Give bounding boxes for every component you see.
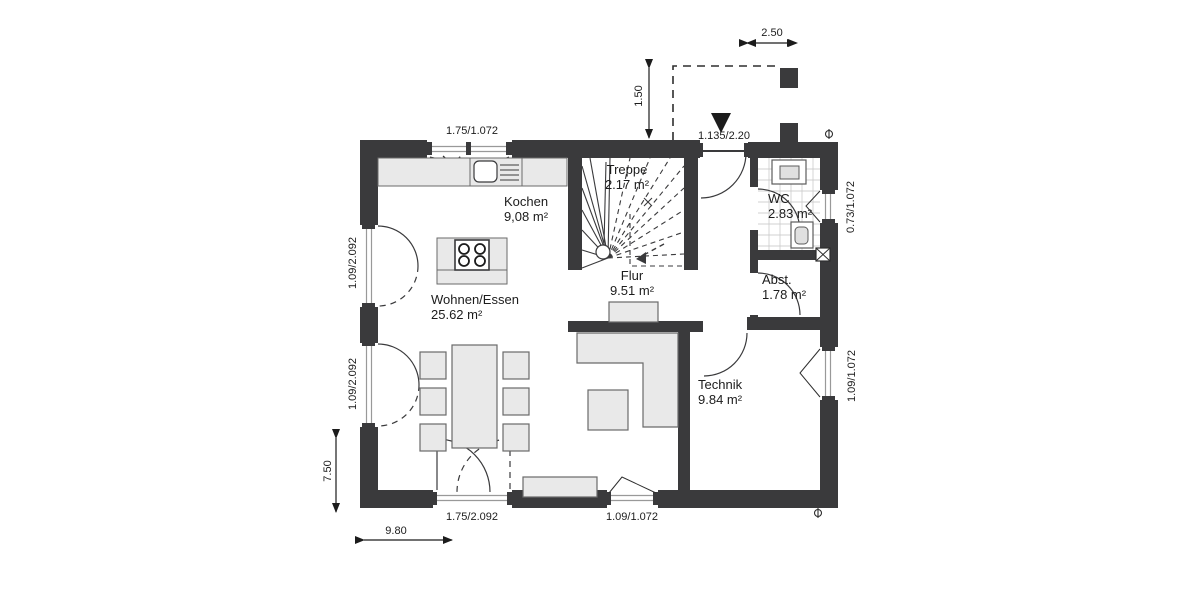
dim-house-depth: 7.50 [322, 446, 334, 496]
wall-right-a [820, 142, 838, 190]
room-label-wohnen: Wohnen/Essen 25.62 m² [431, 292, 519, 322]
wall-abst-technik [747, 317, 820, 330]
wall-wc-left-b [750, 230, 758, 252]
room-area: 9.51 m² [600, 283, 664, 298]
room-label-kochen: Kochen 9,08 m² [494, 194, 558, 224]
wall-top-b [512, 140, 700, 158]
room-area: 2.17 m² [595, 177, 659, 192]
floor-plan-drawing [0, 0, 1200, 600]
wall-stair-left [568, 158, 582, 270]
window-right [800, 346, 835, 401]
wall-bottom-a [360, 490, 433, 508]
door-technik-swing [704, 333, 747, 376]
wall-wc-abst [750, 250, 816, 260]
kitchen-sink-icon [474, 161, 497, 182]
room-label-treppe: Treppe 2.17 m² [595, 162, 659, 192]
wall-pier-top-a [780, 68, 798, 88]
window-bottom [605, 477, 659, 505]
coffee-table [588, 390, 628, 430]
dim-left-window-up: 1.09/2.092 [347, 223, 359, 303]
dim-entrance-door: 1.135/2.20 [679, 130, 769, 142]
wall-wc-left-a [750, 158, 758, 187]
window-left-lower [362, 341, 419, 428]
room-area: 9,08 m² [494, 209, 558, 224]
room-area: 1.78 m² [762, 287, 806, 302]
wall-abst-left-a [750, 260, 758, 273]
room-name: Wohnen/Essen [431, 292, 519, 307]
stair-newel-icon [596, 245, 610, 259]
shaft-symbol-icon [816, 248, 830, 261]
room-label-technik: Technik 9.84 m² [698, 377, 742, 407]
chair [420, 388, 446, 415]
chair [503, 352, 529, 379]
room-name: WC [768, 191, 812, 206]
wall-pier-top-b [780, 123, 798, 142]
room-area: 25.62 m² [431, 307, 519, 322]
room-label-flur: Flur 9.51 m² [600, 268, 664, 298]
dining-table [452, 345, 497, 448]
kitchen-counter [378, 158, 567, 186]
dim-left-window-low: 1.09/2.092 [347, 344, 359, 424]
wall-technik-left [678, 332, 690, 490]
dim-bottom-window: 1.09/1.072 [587, 511, 677, 523]
window-left-upper [362, 224, 418, 308]
chair [420, 424, 446, 451]
dining-set [420, 345, 529, 451]
room-name: Treppe [595, 162, 659, 177]
room-label-wc: WC 2.83 m² [768, 191, 812, 221]
dim-porch-width: 2.50 [747, 27, 797, 39]
wall-flur-living [568, 321, 703, 332]
porch-outline [673, 66, 779, 140]
room-area: 2.83 m² [768, 206, 812, 221]
room-area: 9.84 m² [698, 392, 742, 407]
wall-left-b [360, 307, 378, 343]
window-sideboard [523, 477, 597, 497]
room-name: Kochen [494, 194, 558, 209]
floor-plan-canvas: Treppe 2.17 m² Kochen 9,08 m² Flur 9.51 … [0, 0, 1200, 600]
dim-wc-window: 0.73/1.072 [845, 167, 857, 247]
room-name: Abst. [762, 272, 806, 287]
dim-porch-depth: 1.50 [633, 71, 645, 121]
cooktop-icon [455, 240, 489, 270]
stair-direction-arrow-icon [636, 252, 646, 264]
chair [503, 424, 529, 451]
room-name: Flur [600, 268, 664, 283]
stair-cut-mark-icon [644, 198, 652, 206]
room-label-abst: Abst. 1.78 m² [762, 272, 806, 302]
dim-house-width: 9.80 [371, 525, 421, 537]
wall-top-a [360, 140, 427, 158]
wall-bottom-c [658, 490, 838, 508]
chair [420, 352, 446, 379]
room-name: Technik [698, 377, 742, 392]
chair [503, 388, 529, 415]
wall-right-b [820, 223, 838, 347]
dim-right-window: 1.09/1.072 [846, 336, 858, 416]
flur-sideboard [609, 302, 658, 322]
dim-top-window: 1.75/1.072 [427, 125, 517, 137]
kitchen-island [437, 238, 507, 284]
door-entrance [698, 143, 749, 198]
dim-terrace-door: 1.75/2.092 [427, 511, 517, 523]
wall-stair-right [684, 158, 698, 270]
